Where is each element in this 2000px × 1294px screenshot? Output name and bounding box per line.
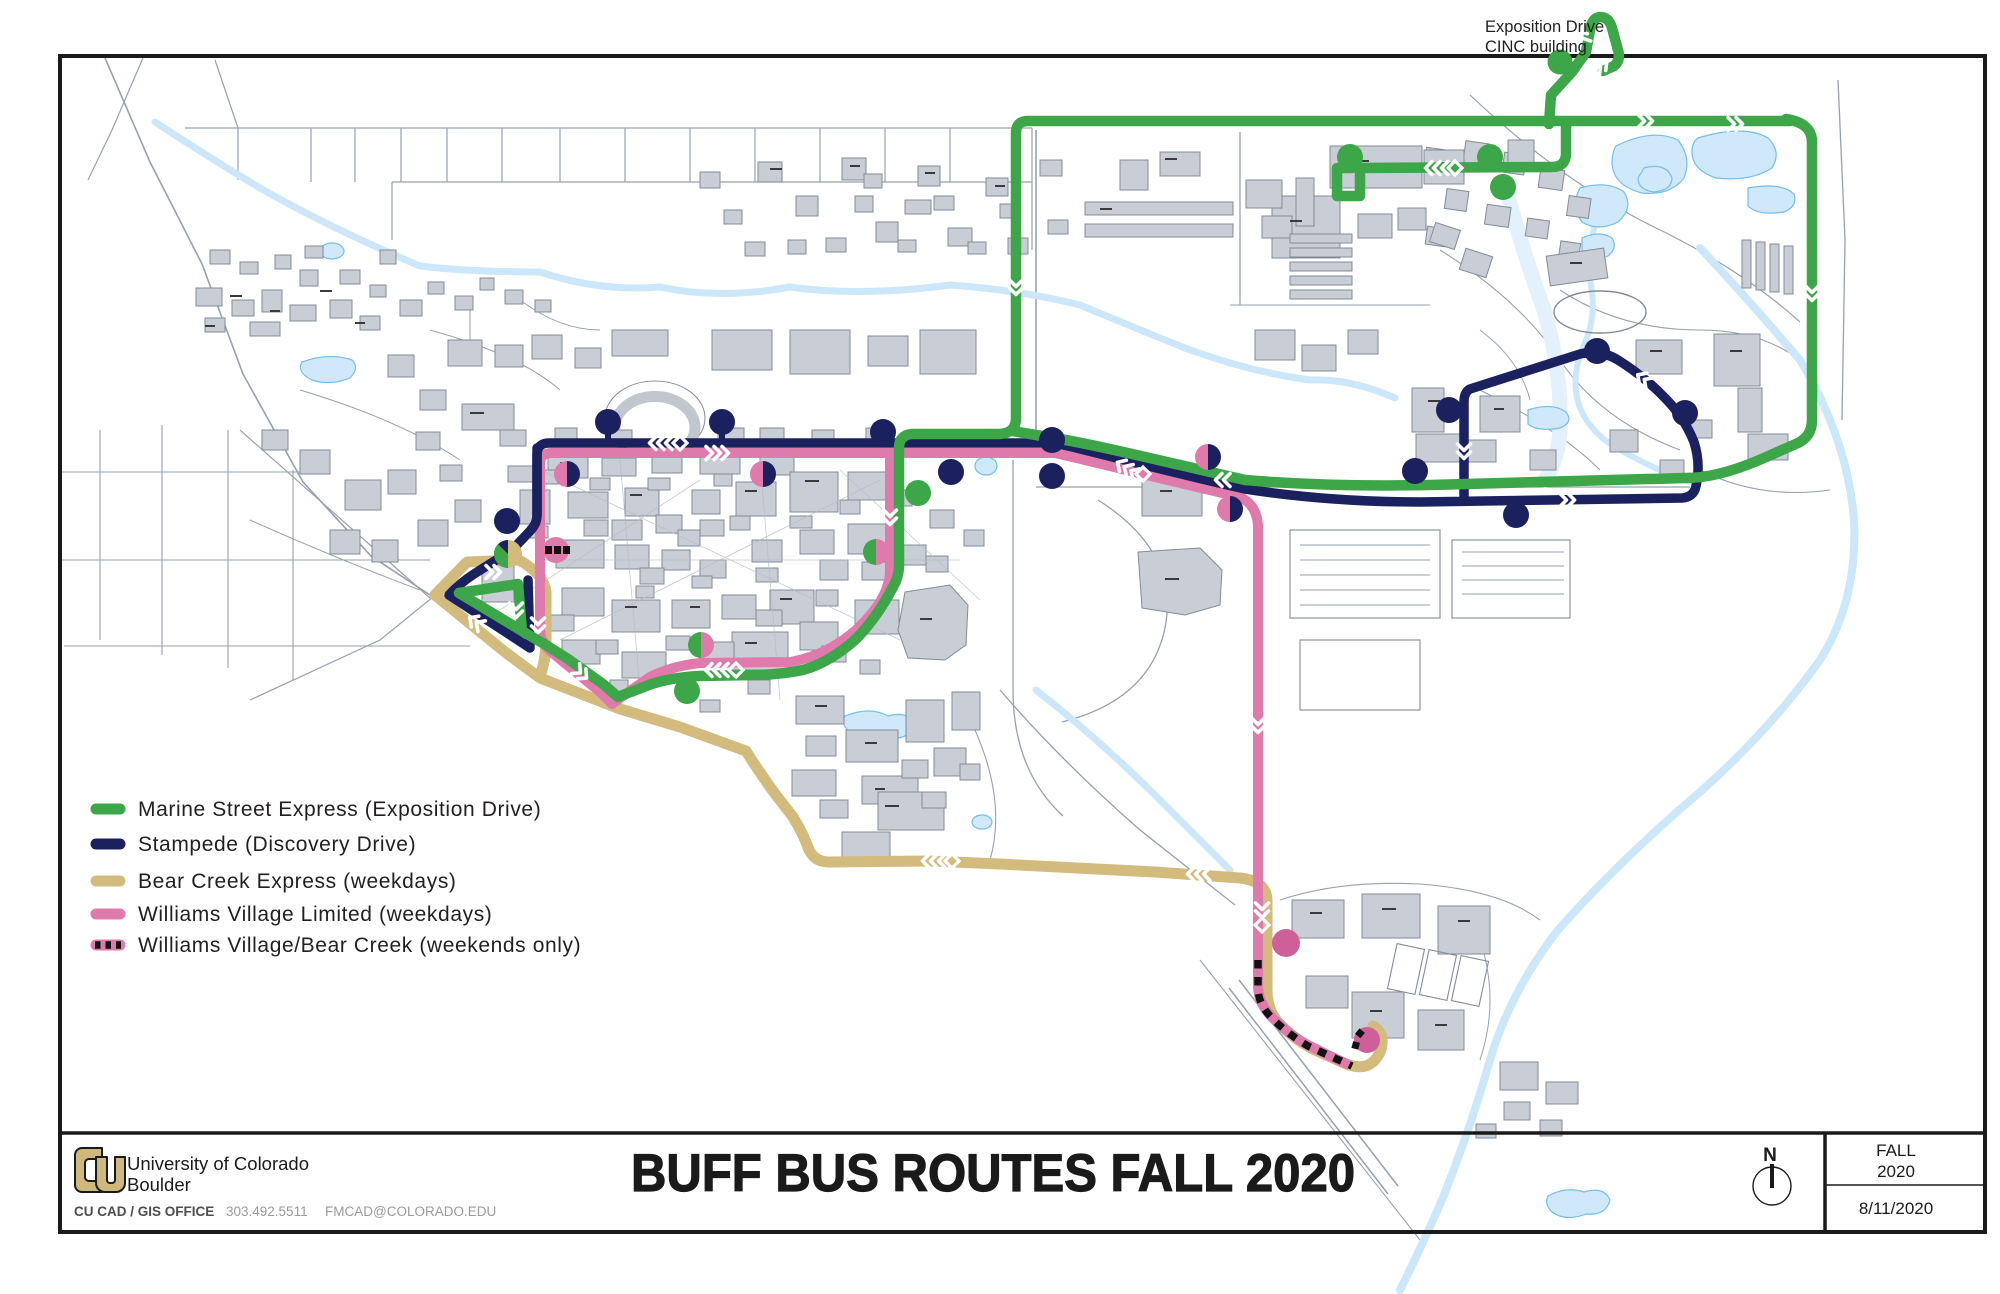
svg-text:Williams Village/Bear Creek (w: Williams Village/Bear Creek (weekends on… xyxy=(138,934,581,957)
svg-text:Bear Creek Express (weekdays): Bear Creek Express (weekdays) xyxy=(138,870,457,893)
svg-text:Marine Street Express (Exposit: Marine Street Express (Exposition Drive) xyxy=(138,798,541,821)
svg-text:N: N xyxy=(1763,1145,1777,1166)
svg-text:2020: 2020 xyxy=(1877,1162,1915,1181)
svg-text:CINC building: CINC building xyxy=(1485,38,1587,56)
svg-text:BUFF BUS ROUTES FALL 2020: BUFF BUS ROUTES FALL 2020 xyxy=(631,1144,1355,1203)
svg-text:Williams Village Limited (week: Williams Village Limited (weekdays) xyxy=(138,903,492,926)
svg-text:FALL: FALL xyxy=(1876,1141,1916,1160)
svg-text:University of Colorado: University of Colorado xyxy=(127,1153,309,1174)
svg-text:CU CAD / GIS OFFICE: CU CAD / GIS OFFICE xyxy=(74,1204,214,1219)
svg-text:303.492.5511: 303.492.5511 xyxy=(226,1204,308,1219)
svg-text:FMCAD@COLORADO.EDU: FMCAD@COLORADO.EDU xyxy=(325,1204,496,1219)
svg-text:Exposition Drive: Exposition Drive xyxy=(1485,18,1604,36)
svg-text:8/11/2020: 8/11/2020 xyxy=(1859,1199,1933,1218)
svg-text:Boulder: Boulder xyxy=(127,1174,191,1195)
svg-text:Stampede (Discovery Drive): Stampede (Discovery Drive) xyxy=(138,833,416,856)
